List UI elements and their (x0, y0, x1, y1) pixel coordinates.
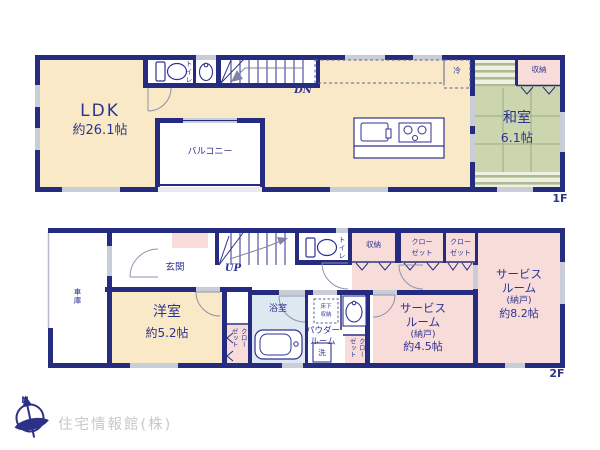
toilet-icon-1f (156, 62, 187, 81)
floorplan-image: LDK 約26.1帖 バルコニー 和室 6.1帖 トイレ 収納 冷 DN 1F … (0, 0, 600, 450)
closet-box-a-line2: ゼット (401, 248, 443, 259)
shoe-cabinet (172, 233, 208, 248)
stairs-up-label: UP (218, 263, 248, 275)
service-large-line2: ルーム (478, 281, 560, 295)
tatami-stripe-band-top (475, 59, 518, 87)
service-large-line1: サービス (478, 267, 560, 281)
western-room-label: 洋室 (132, 304, 202, 321)
laundry-label: 洗 (313, 348, 331, 357)
stairs-up (219, 233, 285, 265)
stairs-up-arrowhead (277, 237, 288, 245)
western-room-size-label: 約5.2帖 (127, 326, 207, 340)
floorplan-drawing (0, 0, 600, 450)
underfloor-line1: 床下 (315, 303, 337, 311)
service-small-line1: サービス (368, 302, 478, 316)
balcony-railing (157, 184, 263, 186)
service-small-line2: ルーム (368, 316, 478, 330)
fridge-label: 冷 (444, 66, 470, 75)
garage-label: 車庫 (72, 288, 83, 305)
toilet-1f-label: トイレ (184, 60, 194, 84)
bath-label: 浴室 (255, 304, 301, 315)
closet-strip-center-line2: ゼット (347, 338, 356, 358)
balcony-label: バルコニー (157, 147, 263, 158)
closet-strip-west-line1: クロー (238, 328, 247, 348)
compass-north-label: N (17, 396, 33, 407)
powder-room-line2: ルーム (301, 337, 345, 348)
powder-room-line1: パウダー (301, 326, 345, 337)
service-small-line4: 約4.5帖 (368, 340, 478, 353)
floor2-label: 2F (542, 367, 572, 380)
underfloor-storage-label: 床下 収納 (315, 303, 337, 320)
tatami-stripe-band-bottom (475, 172, 560, 188)
ldk-label: LDK (60, 101, 140, 121)
closet-box-a-line1: クロー (401, 237, 443, 248)
entrance-label: 玄関 (155, 262, 195, 273)
closet-strip-west-line2: ゼット (229, 328, 238, 348)
storage-1f-label: 収納 (518, 65, 560, 74)
sink-icon-2f (343, 296, 366, 326)
service-large-line3: (納戸) (478, 296, 560, 307)
bathtub-icon (255, 330, 302, 359)
company-watermark: 住宅情報館(株) (58, 417, 238, 434)
closet-box-b-label: クロー ゼット (446, 237, 475, 258)
toilet-2f-label: トイレ (337, 236, 347, 260)
sink-icon-1f (200, 63, 213, 80)
closet-box-b-line1: クロー (446, 237, 475, 248)
door-arc-entrance (130, 249, 158, 277)
door-arc-toilet-2f (322, 263, 348, 289)
service-large-line4: 約8.2帖 (478, 307, 560, 321)
closet-strip-center-line1: クロー (356, 338, 365, 358)
closet-strip-center-label: クロー ゼット (347, 338, 365, 358)
kitchen-island-icon (354, 118, 444, 158)
storage-2f-label: 収納 (352, 240, 395, 249)
service-room-large-label: サービス ルーム (納戸) 約8.2帖 (478, 267, 560, 321)
washitsu-label: 和室 (487, 110, 547, 127)
toilet-icon-2f (306, 238, 337, 257)
underfloor-line2: 収納 (315, 311, 337, 319)
powder-room-label: パウダー ルーム (301, 326, 345, 348)
closet-box-a-label: クロー ゼット (401, 237, 443, 258)
washitsu-size-label: 6.1帖 (487, 130, 547, 145)
hall-fill (352, 263, 478, 293)
service-room-small-label: サービス ルーム (納戸) 約4.5帖 (368, 302, 478, 354)
floor1-label: 1F (545, 192, 575, 205)
service-small-line3: (納戸) (368, 330, 478, 341)
stairs-dn-label: DN (288, 85, 318, 97)
closet-strip-west-label: クロー ゼット (229, 328, 247, 348)
closet-box-b-line2: ゼット (446, 248, 475, 259)
ldk-size-label: 約26.1帖 (52, 123, 148, 139)
